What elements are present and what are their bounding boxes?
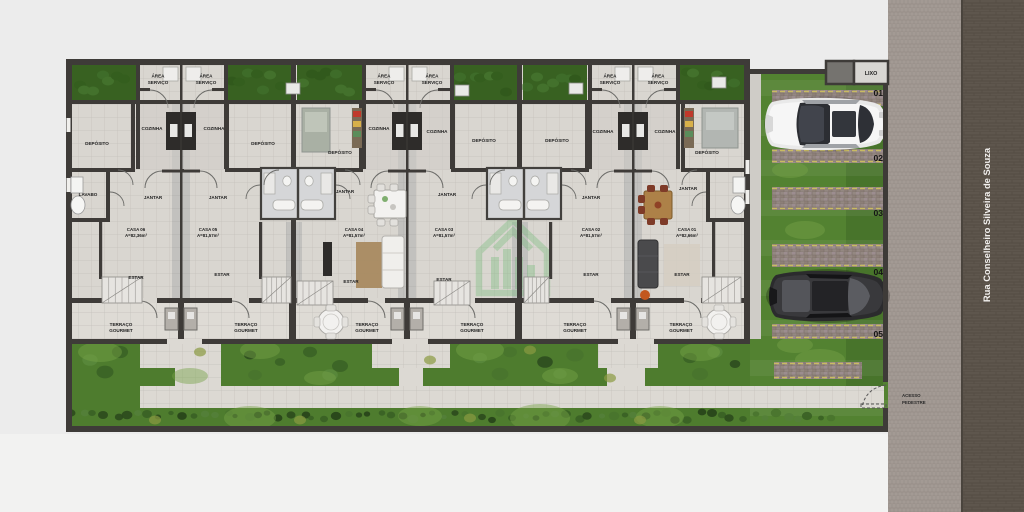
svg-text:03: 03 (873, 208, 883, 218)
svg-text:JANTAR: JANTAR (438, 192, 457, 197)
svg-text:TERRAÇO: TERRAÇO (461, 322, 484, 327)
svg-text:JANTAR: JANTAR (209, 195, 228, 200)
svg-text:A=82,36m²: A=82,36m² (125, 233, 148, 238)
svg-text:A=81,57m²: A=81,57m² (580, 233, 603, 238)
svg-text:DEPÓSITO: DEPÓSITO (85, 139, 109, 146)
svg-text:GOURMET: GOURMET (234, 328, 258, 333)
svg-text:A=81,57m²: A=81,57m² (197, 233, 220, 238)
svg-text:ÁREA: ÁREA (199, 73, 213, 79)
svg-text:SERVIÇO: SERVIÇO (648, 80, 669, 85)
svg-text:LIXO: LIXO (865, 71, 878, 77)
svg-text:ESTAR: ESTAR (343, 279, 359, 284)
svg-text:GOURMET: GOURMET (109, 328, 133, 333)
svg-text:ESTAR: ESTAR (583, 272, 599, 277)
svg-text:CASA 05: CASA 05 (199, 227, 218, 232)
svg-text:A=81,57m²: A=81,57m² (343, 233, 366, 238)
svg-text:SERVIÇO: SERVIÇO (196, 80, 217, 85)
svg-text:DEPÓSITO: DEPÓSITO (695, 148, 719, 155)
svg-text:ÁREA: ÁREA (603, 73, 617, 79)
svg-text:SERVIÇO: SERVIÇO (422, 80, 443, 85)
svg-text:ESTAR: ESTAR (128, 275, 144, 280)
svg-text:JANTAR: JANTAR (582, 195, 601, 200)
svg-text:LAVABO: LAVABO (79, 192, 98, 197)
svg-text:JANTAR: JANTAR (679, 186, 698, 191)
svg-text:Rua Conselheiro Silveira de So: Rua Conselheiro Silveira de Souza (981, 147, 992, 302)
svg-text:ÁREA: ÁREA (377, 73, 391, 79)
svg-text:TERRAÇO: TERRAÇO (564, 322, 587, 327)
svg-text:DEPÓSITO: DEPÓSITO (328, 148, 352, 155)
svg-text:ESTAR: ESTAR (674, 272, 690, 277)
svg-text:GOURMET: GOURMET (355, 328, 379, 333)
svg-text:GOURMET: GOURMET (563, 328, 587, 333)
svg-text:ESTAR: ESTAR (436, 277, 452, 282)
svg-text:01: 01 (873, 88, 883, 98)
svg-text:ÁREA: ÁREA (425, 73, 439, 79)
svg-text:ÁREA: ÁREA (651, 73, 665, 79)
svg-text:TERRAÇO: TERRAÇO (235, 322, 258, 327)
svg-text:A=82,66m²: A=82,66m² (676, 233, 699, 238)
svg-text:COZINHA: COZINHA (427, 129, 449, 134)
svg-text:PEDESTRE: PEDESTRE (902, 400, 926, 405)
svg-text:DEPÓSITO: DEPÓSITO (472, 136, 496, 143)
svg-text:TERRAÇO: TERRAÇO (110, 322, 133, 327)
svg-text:CASA 02: CASA 02 (582, 227, 601, 232)
svg-text:GOURMET: GOURMET (460, 328, 484, 333)
svg-text:CASA 06: CASA 06 (127, 227, 146, 232)
svg-text:JANTAR: JANTAR (336, 189, 355, 194)
svg-text:SERVIÇO: SERVIÇO (374, 80, 395, 85)
svg-text:COZINHA: COZINHA (369, 126, 391, 131)
svg-text:DEPÓSITO: DEPÓSITO (251, 139, 275, 146)
svg-text:TERRAÇO: TERRAÇO (670, 322, 693, 327)
svg-text:04: 04 (873, 267, 883, 277)
svg-text:ACESSO: ACESSO (902, 393, 921, 398)
svg-text:ESTAR: ESTAR (214, 272, 230, 277)
svg-text:COZINHA: COZINHA (593, 129, 615, 134)
svg-text:02: 02 (873, 153, 883, 163)
svg-text:ÁREA: ÁREA (151, 73, 165, 79)
svg-text:COZINHA: COZINHA (142, 126, 164, 131)
svg-text:A=81,57m²: A=81,57m² (433, 233, 456, 238)
svg-text:COZINHA: COZINHA (655, 129, 677, 134)
svg-text:GOURMET: GOURMET (669, 328, 693, 333)
svg-text:SERVIÇO: SERVIÇO (148, 80, 169, 85)
svg-text:CASA 03: CASA 03 (435, 227, 454, 232)
svg-text:JANTAR: JANTAR (144, 195, 163, 200)
svg-text:TERRAÇO: TERRAÇO (356, 322, 379, 327)
svg-text:05: 05 (873, 329, 883, 339)
svg-text:COZINHA: COZINHA (204, 126, 226, 131)
svg-text:SERVIÇO: SERVIÇO (600, 80, 621, 85)
svg-text:CASA 04: CASA 04 (345, 227, 364, 232)
svg-text:DEPÓSITO: DEPÓSITO (545, 136, 569, 143)
svg-text:CASA 01: CASA 01 (678, 227, 697, 232)
